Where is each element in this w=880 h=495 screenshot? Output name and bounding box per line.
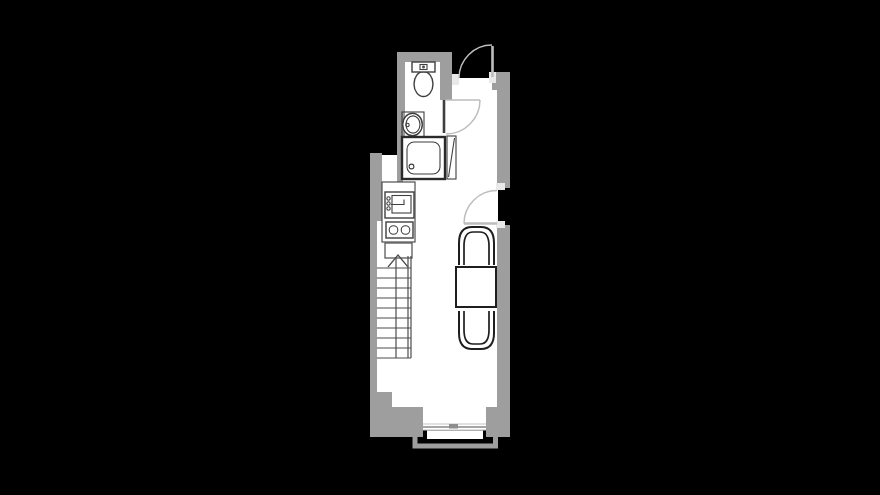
window-sill (427, 431, 483, 440)
dining-set (456, 227, 496, 349)
entrance-door (459, 45, 493, 78)
toilet-bowl (414, 72, 433, 97)
wall-bottom-left (370, 407, 423, 437)
wall-left-kitchen (370, 153, 382, 221)
wall-bathroom-hall (440, 53, 452, 100)
toilet-tank (412, 62, 435, 72)
shower (402, 137, 445, 179)
cooktop (386, 222, 413, 238)
wall-right-upper (497, 72, 510, 188)
balcony-door-jamb-bottom (496, 221, 505, 228)
shower-tray-outer (402, 137, 445, 179)
toilet (412, 62, 435, 97)
floor-plan-drawing (0, 0, 880, 495)
window-bay (423, 406, 486, 439)
wall-left-step (370, 392, 392, 408)
floor-plan-canvas (0, 0, 880, 495)
dining-table (456, 267, 496, 307)
wall-bottom-right (486, 407, 510, 437)
entrance-jamb-left (452, 74, 459, 85)
wall-right-lower (497, 225, 510, 407)
balcony-door-jamb-top (496, 183, 505, 190)
entrance-door-swing-arc (459, 45, 492, 78)
kitchen-sink (385, 192, 414, 218)
window-handle (449, 424, 458, 429)
cooktop-outline (386, 222, 413, 238)
wall-left-stairs (370, 221, 377, 393)
